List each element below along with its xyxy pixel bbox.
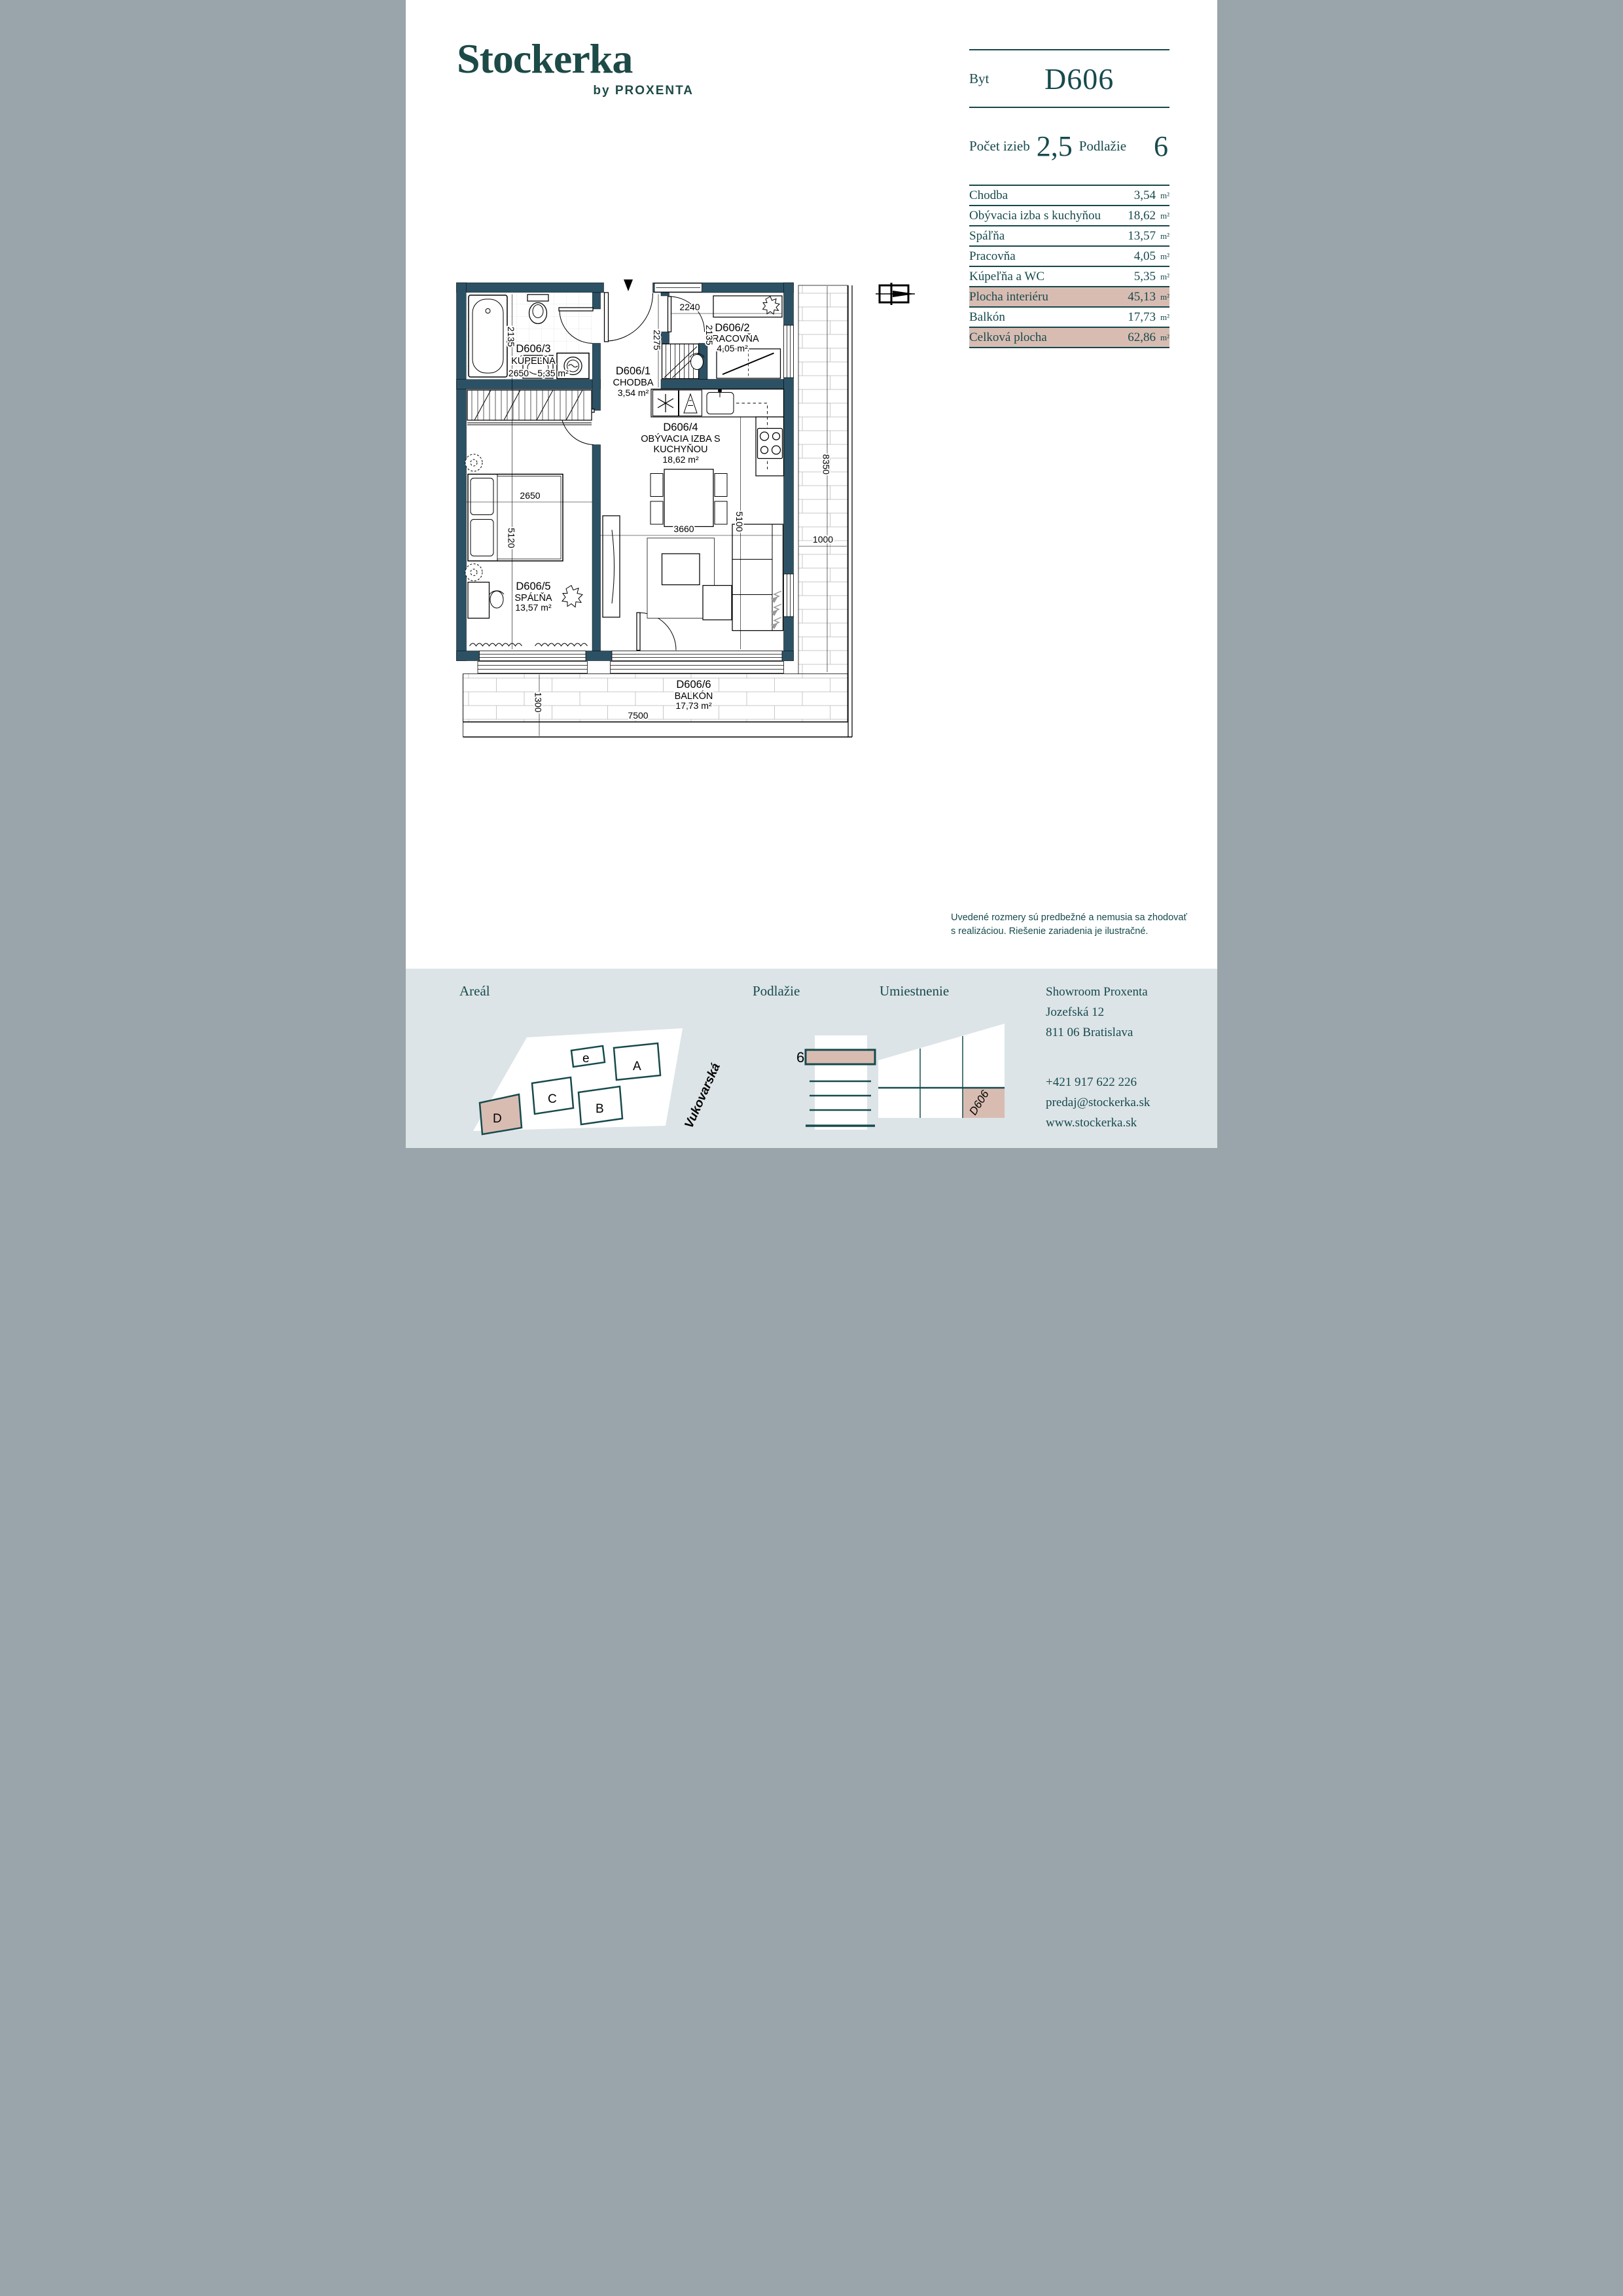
room-label-bedroom-area: 13,57 m² [515, 602, 552, 613]
tv-unit-icon [603, 516, 620, 617]
street-label: Vukovarská [682, 1061, 723, 1130]
disclaimer-line2: s realizáciou. Riešenie zariadenia je il… [951, 925, 1200, 939]
area-row-label: Celková plocha [969, 331, 1047, 345]
balcony-side [798, 285, 852, 737]
area-unit: m² [1160, 292, 1169, 302]
footer-site-label: Areál [459, 983, 490, 999]
room-label-living-name1: OBÝVACIA IZBA S [641, 433, 720, 444]
window-sills [478, 662, 784, 673]
contact-email: predaj@stockerka.sk [1046, 1092, 1150, 1113]
area-row: Chodba 3,54m² [969, 185, 1169, 205]
room-label-living-name2: KUCHYŇOU [654, 444, 708, 455]
area-row-label: Chodba [969, 188, 1008, 203]
area-unit: m² [1160, 231, 1169, 242]
brand-name: Stockerka [457, 38, 694, 80]
floor-diagram: 6 [795, 1033, 883, 1132]
area-unit: m² [1160, 332, 1169, 343]
room-label-hall-id: D606/1 [616, 365, 651, 377]
coffee-table-icon [662, 554, 700, 585]
floor-value: 6 [1154, 130, 1168, 163]
brand-byline: by PROXENTA [457, 84, 694, 98]
dim-bed-width: 2650 [520, 490, 540, 501]
floorplan-sheet: Stockerka by PROXENTA Byt D606 Počet izi… [406, 0, 1217, 1148]
fridge-icon [653, 390, 679, 416]
stove-icon [758, 429, 783, 459]
contact-address1: Jozefská 12 [1046, 1002, 1148, 1022]
area-unit: m² [1160, 251, 1169, 262]
dim-office-depth: 2135 [704, 325, 715, 345]
unit-summary-table: Byt D606 Počet izieb 2,5 Podlažie 6 Chod… [969, 49, 1169, 348]
dim-bath-depth: 2135 [506, 327, 516, 347]
logo: Stockerka by PROXENTA [457, 38, 694, 98]
rooms-floor-row: Počet izieb 2,5 Podlažie 6 [969, 107, 1169, 185]
dim-hall-height: 2275 [652, 330, 662, 350]
building-e-label: e [582, 1052, 590, 1066]
area-row-value: 62,86 [1128, 331, 1156, 345]
compass-icon [876, 283, 918, 306]
entrance-door [605, 279, 653, 342]
area-row: Pracovňa 4,05m² [969, 245, 1169, 266]
area-row-value: 45,13 [1128, 290, 1156, 304]
room-label-hall-area: 3,54 m² [618, 387, 649, 398]
floor-plan: D606/3 KÚPEĽŇA 2650 5,35 m² D606/1 CHODB… [455, 279, 854, 744]
dim-balcony-side-height: 8350 [821, 454, 832, 475]
area-row-label: Spáľňa [969, 229, 1005, 243]
area-row-value: 3,54 [1134, 188, 1156, 203]
area-row-grand-total: Celková plocha 62,86m² [969, 327, 1169, 348]
area-unit: m² [1160, 312, 1169, 323]
byt-label: Byt [969, 71, 989, 87]
area-row: Balkón 17,73m² [969, 306, 1169, 327]
bathtub-icon [469, 295, 507, 377]
unit-id-row: Byt D606 [969, 49, 1169, 107]
floor-number: 6 [796, 1049, 804, 1066]
desk-icon [468, 583, 490, 619]
toilet-icon [527, 295, 548, 324]
dim-balcony-bottom-depth: 1300 [533, 692, 544, 712]
area-row: Spáľňa 13,57m² [969, 225, 1169, 245]
area-row-label: Kúpeľňa a WC [969, 270, 1044, 284]
wardrobe-icon [467, 390, 592, 425]
dim-bath-width: 2650 [508, 368, 529, 378]
area-row-interior-total: Plocha interiéru 45,13m² [969, 286, 1169, 306]
area-row-value: 18,62 [1128, 209, 1156, 223]
chair-icon [490, 591, 504, 608]
plant-icon [562, 586, 582, 607]
room-label-living-area: 18,62 m² [662, 454, 699, 465]
room-label-bath-id: D606/3 [516, 343, 550, 355]
living-room [603, 469, 783, 631]
radiator-icon [470, 643, 588, 646]
room-label-living-id: D606/4 [663, 422, 698, 433]
area-row-label: Plocha interiéru [969, 290, 1048, 304]
area-row-value: 13,57 [1128, 229, 1156, 243]
rooms-value: 2,5 [1037, 130, 1073, 163]
dim-living-height: 5100 [734, 511, 745, 531]
balcony-bottom [463, 674, 853, 738]
disclaimer-line1: Uvedené rozmery sú predbežné a nemusia s… [951, 911, 1200, 925]
dining-table-icon [651, 469, 727, 527]
disclaimer: Uvedené rozmery sú predbežné a nemusia s… [951, 911, 1200, 939]
area-row-label: Pracovňa [969, 249, 1016, 264]
office-shelf-icon [713, 296, 782, 317]
dim-balcony-bottom-width: 7500 [628, 710, 648, 721]
rooms-label: Počet izieb [969, 138, 1030, 154]
building-b-label: B [596, 1102, 604, 1116]
area-row-value: 4,05 [1134, 249, 1156, 264]
sofa-icon [703, 524, 783, 631]
building-c-label: C [548, 1092, 557, 1106]
elevation-diagram: D606 [878, 1022, 1006, 1119]
room-label-office-id: D606/2 [715, 322, 749, 334]
area-unit: m² [1160, 211, 1169, 221]
footer-floor-label: Podlažie [753, 983, 800, 999]
dim-office-width: 2240 [679, 302, 700, 312]
footer-location-label: Umiestnenie [880, 983, 949, 999]
area-row-value: 5,35 [1134, 270, 1156, 284]
room-label-balcony-id: D606/6 [676, 679, 711, 691]
floor-label: Podlažie [1079, 138, 1126, 154]
dim-balcony-side-width: 1000 [813, 534, 833, 545]
building-a-label: A [633, 1060, 641, 1073]
oven-icon [679, 390, 702, 416]
room-label-balcony-name: BALKÓN [675, 691, 713, 702]
area-row: Kúpeľňa a WC 5,35m² [969, 266, 1169, 286]
contact-name: Showroom Proxenta [1046, 982, 1148, 1002]
building-d-label: D [493, 1112, 502, 1126]
area-row: Obývacia izba s kuchyňou 18,62m² [969, 205, 1169, 225]
dim-living-width: 3660 [673, 524, 694, 534]
site-map: e A C B D Vukovarská [461, 1024, 723, 1139]
unit-id: D606 [989, 62, 1169, 96]
area-row-value: 17,73 [1128, 310, 1156, 325]
area-unit: m² [1160, 190, 1169, 201]
contact-links: +421 917 622 226 predaj@stockerka.sk www… [1046, 1072, 1150, 1133]
contact-address: Showroom Proxenta Jozefská 12 811 06 Bra… [1046, 982, 1148, 1043]
area-row-label: Obývacia izba s kuchyňou [969, 209, 1101, 223]
sink-icon [707, 389, 734, 414]
contact-address2: 811 06 Bratislava [1046, 1022, 1148, 1043]
room-label-bedroom-id: D606/5 [516, 581, 550, 592]
room-label-bath-name: KÚPEĽŇA [511, 355, 556, 367]
room-label-hall-name: CHODBA [613, 378, 653, 388]
area-row-label: Balkón [969, 310, 1005, 325]
room-label-balcony-area: 17,73 m² [675, 700, 712, 711]
contact-web: www.stockerka.sk [1046, 1113, 1150, 1133]
room-label-office-area: 4,05 m² [717, 343, 748, 353]
room-label-bath-area: 5,35 m² [537, 368, 569, 378]
room-label-bedroom-name: SPÁĽŇA [514, 592, 552, 603]
area-unit: m² [1160, 272, 1169, 282]
contact-phone: +421 917 622 226 [1046, 1072, 1150, 1092]
entrance-arrow-icon [624, 279, 633, 291]
floor-highlight [806, 1050, 875, 1064]
ottoman-icon [703, 586, 732, 620]
dim-bed-height: 5120 [507, 528, 517, 548]
